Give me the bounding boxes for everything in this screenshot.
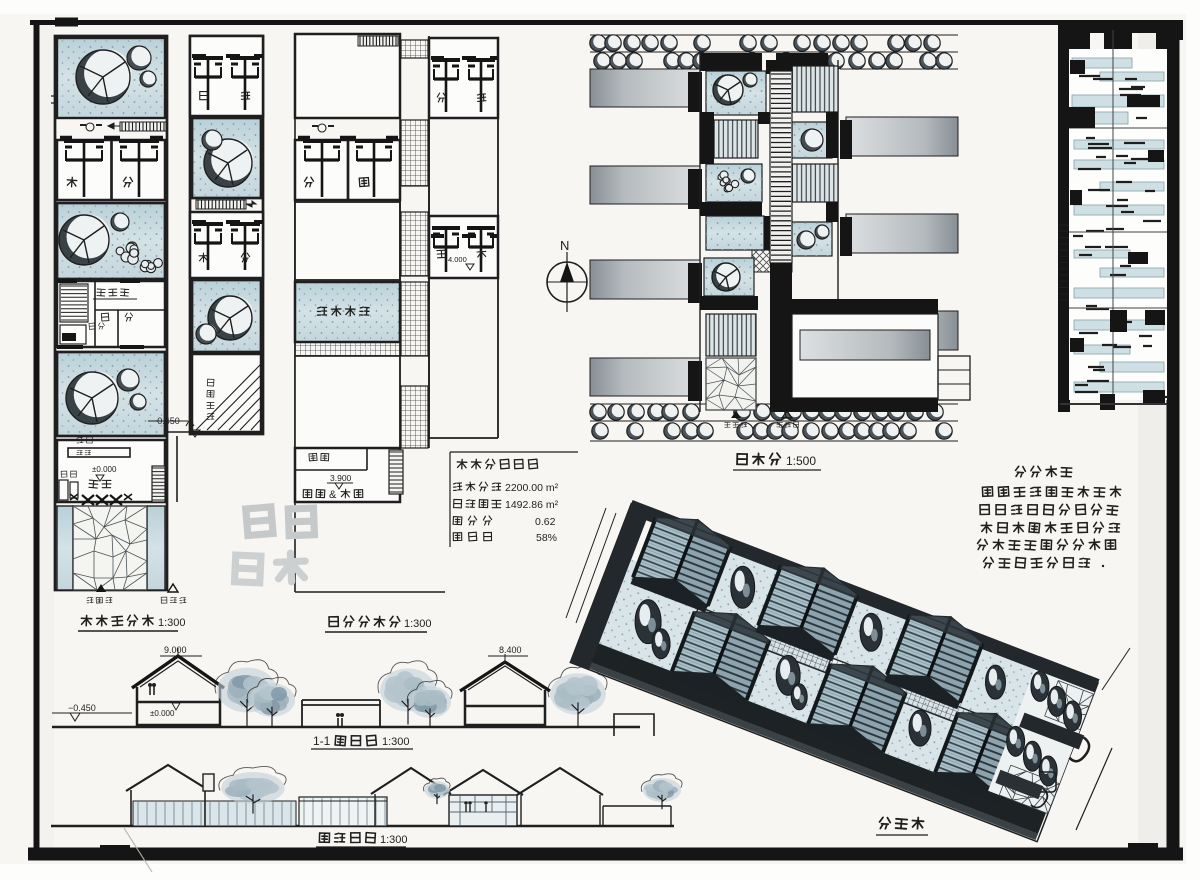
- svg-text:4.000: 4.000: [448, 255, 467, 264]
- svg-text:58%: 58%: [536, 532, 557, 544]
- svg-text:0.62: 0.62: [535, 516, 556, 528]
- svg-text:N: N: [560, 238, 569, 253]
- svg-text:1:300: 1:300: [158, 617, 186, 629]
- svg-text:1:300: 1:300: [382, 736, 410, 748]
- svg-text:8.400: 8.400: [499, 645, 522, 655]
- svg-text:&: &: [329, 489, 337, 501]
- svg-text:1492.86 m²: 1492.86 m²: [505, 499, 559, 511]
- svg-text:1:300: 1:300: [404, 618, 432, 630]
- svg-text:−0.450: −0.450: [68, 703, 96, 713]
- svg-text:2200.00 m²: 2200.00 m²: [505, 482, 559, 494]
- svg-text:3.900: 3.900: [330, 473, 352, 483]
- svg-text:1:300: 1:300: [380, 834, 408, 846]
- svg-text:1:500: 1:500: [786, 454, 816, 468]
- svg-text:±0.000: ±0.000: [150, 709, 175, 718]
- svg-text:9.000: 9.000: [164, 645, 187, 655]
- svg-text:±0.000: ±0.000: [92, 465, 117, 474]
- svg-text:1-1: 1-1: [313, 734, 331, 748]
